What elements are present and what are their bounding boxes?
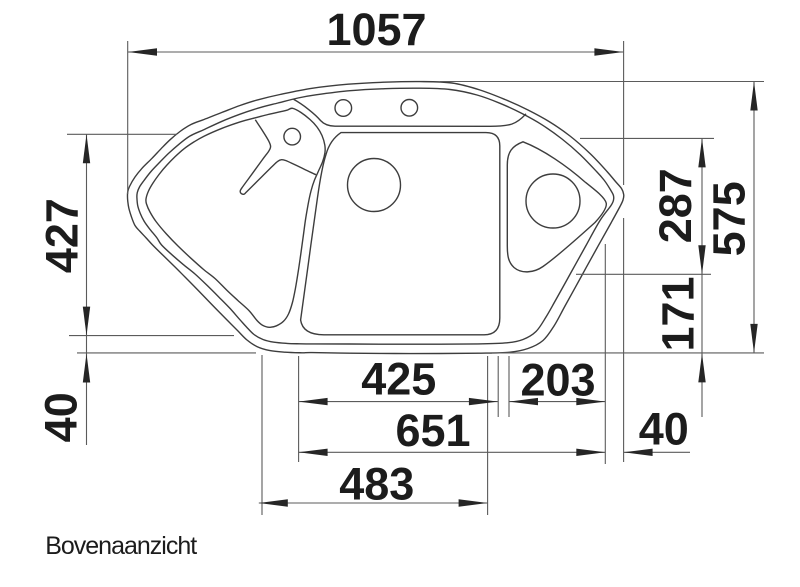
svg-text:203: 203 bbox=[520, 355, 595, 406]
svg-text:651: 651 bbox=[395, 405, 470, 456]
svg-text:575: 575 bbox=[704, 181, 755, 256]
svg-text:287: 287 bbox=[650, 168, 701, 243]
svg-text:427: 427 bbox=[37, 198, 88, 273]
svg-text:Bovenaanzicht: Bovenaanzicht bbox=[45, 532, 197, 560]
svg-text:171: 171 bbox=[653, 276, 704, 351]
svg-text:40: 40 bbox=[639, 404, 689, 455]
svg-text:483: 483 bbox=[339, 459, 414, 510]
svg-text:40: 40 bbox=[36, 392, 87, 442]
svg-text:425: 425 bbox=[361, 354, 436, 405]
svg-text:1057: 1057 bbox=[326, 4, 426, 55]
